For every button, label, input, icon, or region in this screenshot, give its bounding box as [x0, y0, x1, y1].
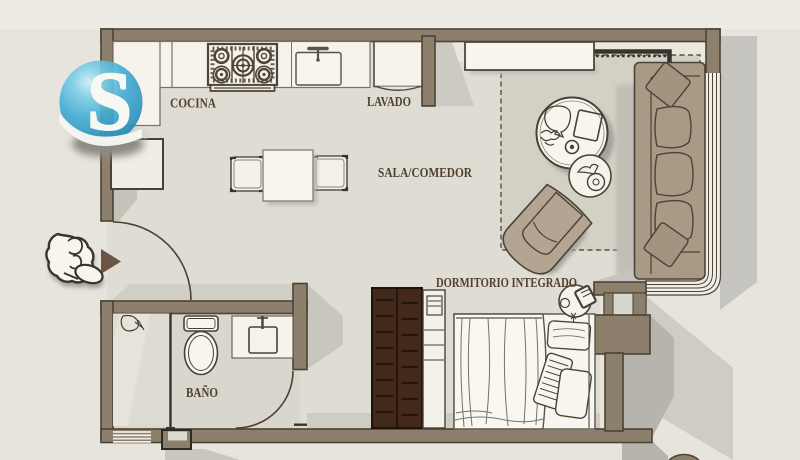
- svg-text:DORMITORIO INTEGRADO: DORMITORIO INTEGRADO: [436, 276, 577, 291]
- svg-text:S: S: [87, 55, 132, 148]
- svg-text:COCINA: COCINA: [170, 97, 217, 112]
- svg-text:SALA/COMEDOR: SALA/COMEDOR: [378, 166, 473, 181]
- svg-text:LAVADO: LAVADO: [367, 95, 411, 110]
- svg-text:BAÑO: BAÑO: [186, 383, 218, 401]
